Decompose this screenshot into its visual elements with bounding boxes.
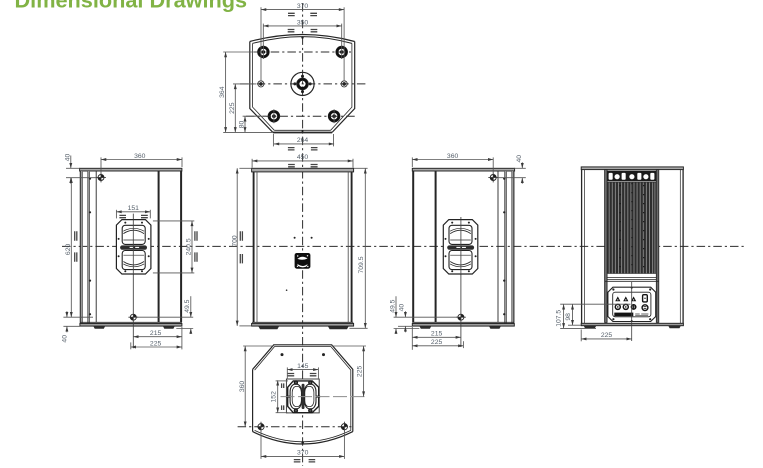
svg-text:49.5: 49.5 [389, 299, 396, 312]
svg-text:40: 40 [516, 155, 523, 163]
svg-text:240.5: 240.5 [185, 238, 192, 255]
svg-text:98: 98 [565, 313, 572, 321]
svg-text:215: 215 [150, 330, 162, 337]
svg-text:225: 225 [229, 102, 236, 114]
svg-text:350: 350 [297, 20, 309, 27]
svg-text:215: 215 [431, 331, 443, 338]
svg-text:151: 151 [128, 205, 140, 212]
svg-text:360: 360 [239, 381, 246, 393]
svg-text:152: 152 [271, 391, 278, 403]
svg-text:225: 225 [601, 332, 613, 339]
svg-text:40: 40 [62, 335, 69, 343]
svg-text:360: 360 [447, 153, 459, 160]
svg-text:370: 370 [297, 3, 309, 10]
svg-text:225: 225 [431, 339, 443, 346]
svg-text:450: 450 [297, 154, 309, 161]
svg-text:370: 370 [297, 450, 309, 457]
svg-text:40: 40 [399, 304, 406, 312]
svg-text:360: 360 [134, 153, 146, 160]
svg-text:225: 225 [356, 366, 363, 378]
svg-text:620: 620 [65, 244, 72, 256]
svg-text:264: 264 [297, 137, 309, 144]
svg-text:709.5: 709.5 [358, 256, 365, 273]
svg-text:40: 40 [65, 154, 72, 162]
svg-text:80: 80 [239, 121, 246, 129]
svg-text:Dimensional Drawings: Dimensional Drawings [15, 0, 248, 12]
svg-text:145: 145 [297, 363, 309, 370]
svg-text:700: 700 [231, 235, 238, 247]
svg-text:49.5: 49.5 [184, 299, 191, 312]
svg-text:364: 364 [219, 86, 226, 98]
svg-text:107.5: 107.5 [555, 310, 562, 327]
svg-text:225: 225 [150, 340, 162, 347]
